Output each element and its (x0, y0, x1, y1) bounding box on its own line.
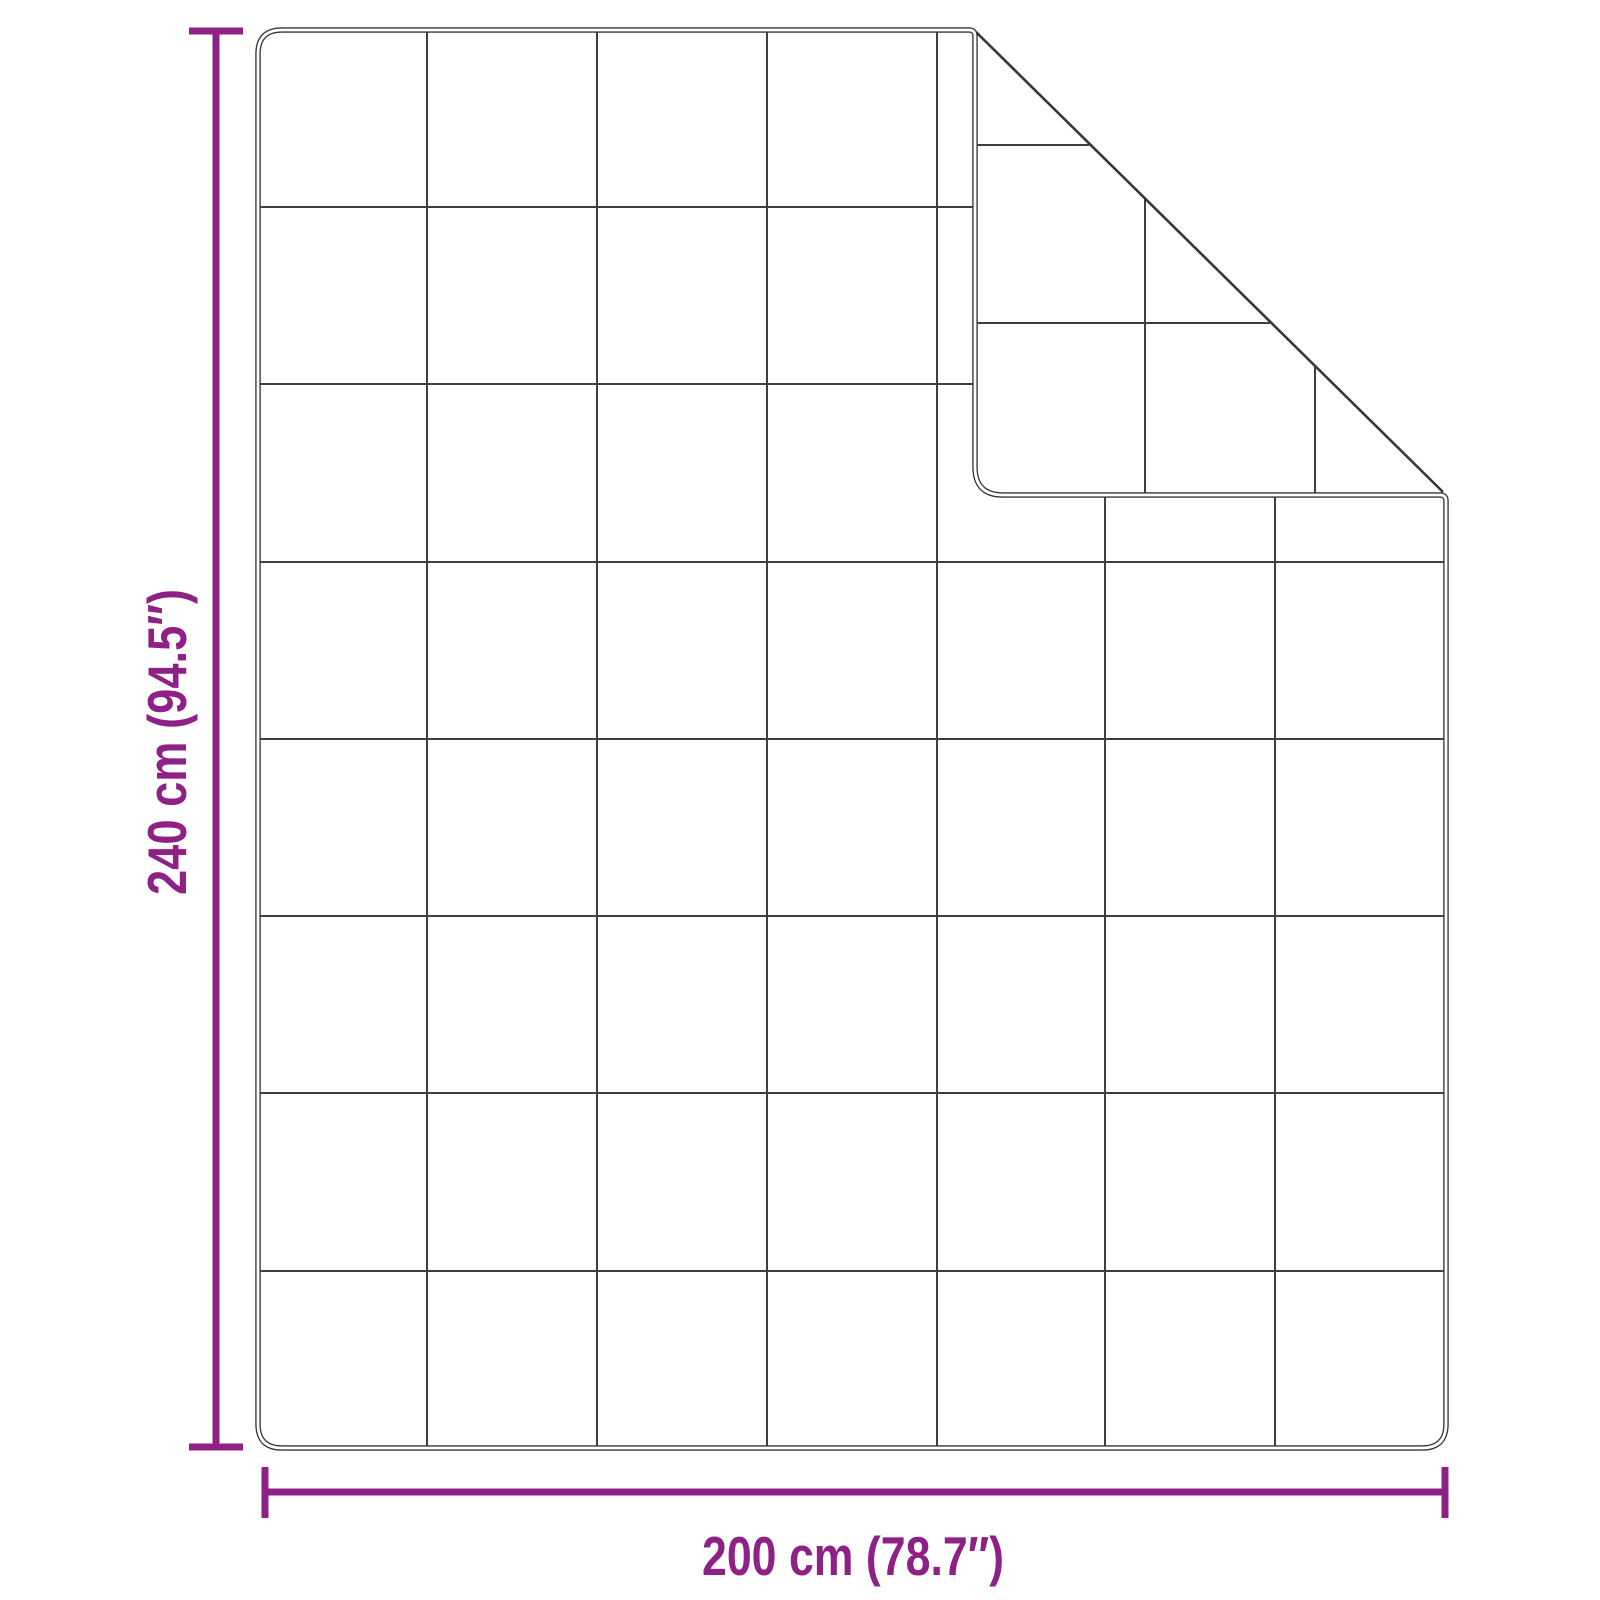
width-dimension-label: 200 cm (78.7″) (702, 1525, 1004, 1587)
blanket-dimension-svg: 240 cm (94.5″) 200 cm (78.7″) (0, 0, 1600, 1600)
fold-flap-grid (977, 145, 1315, 493)
dimension-diagram: 240 cm (94.5″) 200 cm (78.7″) (0, 0, 1600, 1600)
fold-crease-line (976, 32, 1443, 492)
blanket-grid (259, 31, 1445, 1447)
height-dimension-label: 240 cm (94.5″) (136, 589, 198, 895)
width-dimension (265, 1467, 1445, 1518)
